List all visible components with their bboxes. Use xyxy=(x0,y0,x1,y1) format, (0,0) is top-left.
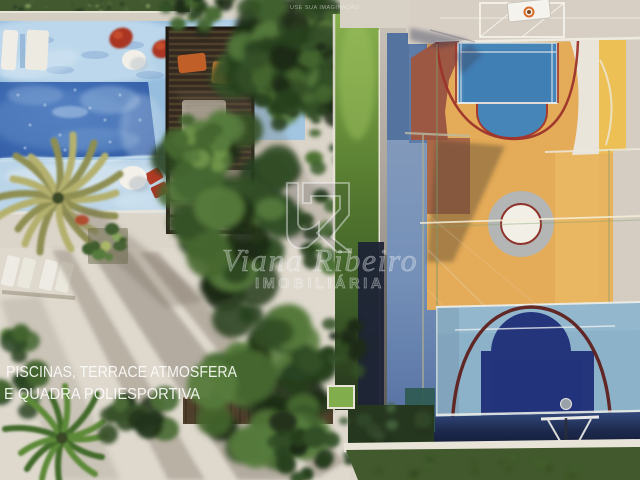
svg-text:PISCINAS, TERRACE ATMOSFERA: PISCINAS, TERRACE ATMOSFERA xyxy=(6,364,237,381)
svg-text:IMOBILIÁRIA: IMOBILIÁRIA xyxy=(255,275,385,292)
svg-text:USE SUA IMAGINAÇÃO: USE SUA IMAGINAÇÃO xyxy=(290,4,360,11)
svg-text:Viana Ribeiro: Viana Ribeiro xyxy=(222,242,418,278)
svg-text:E QUADRA POLIESPORTIVA: E QUADRA POLIESPORTIVA xyxy=(4,386,200,403)
